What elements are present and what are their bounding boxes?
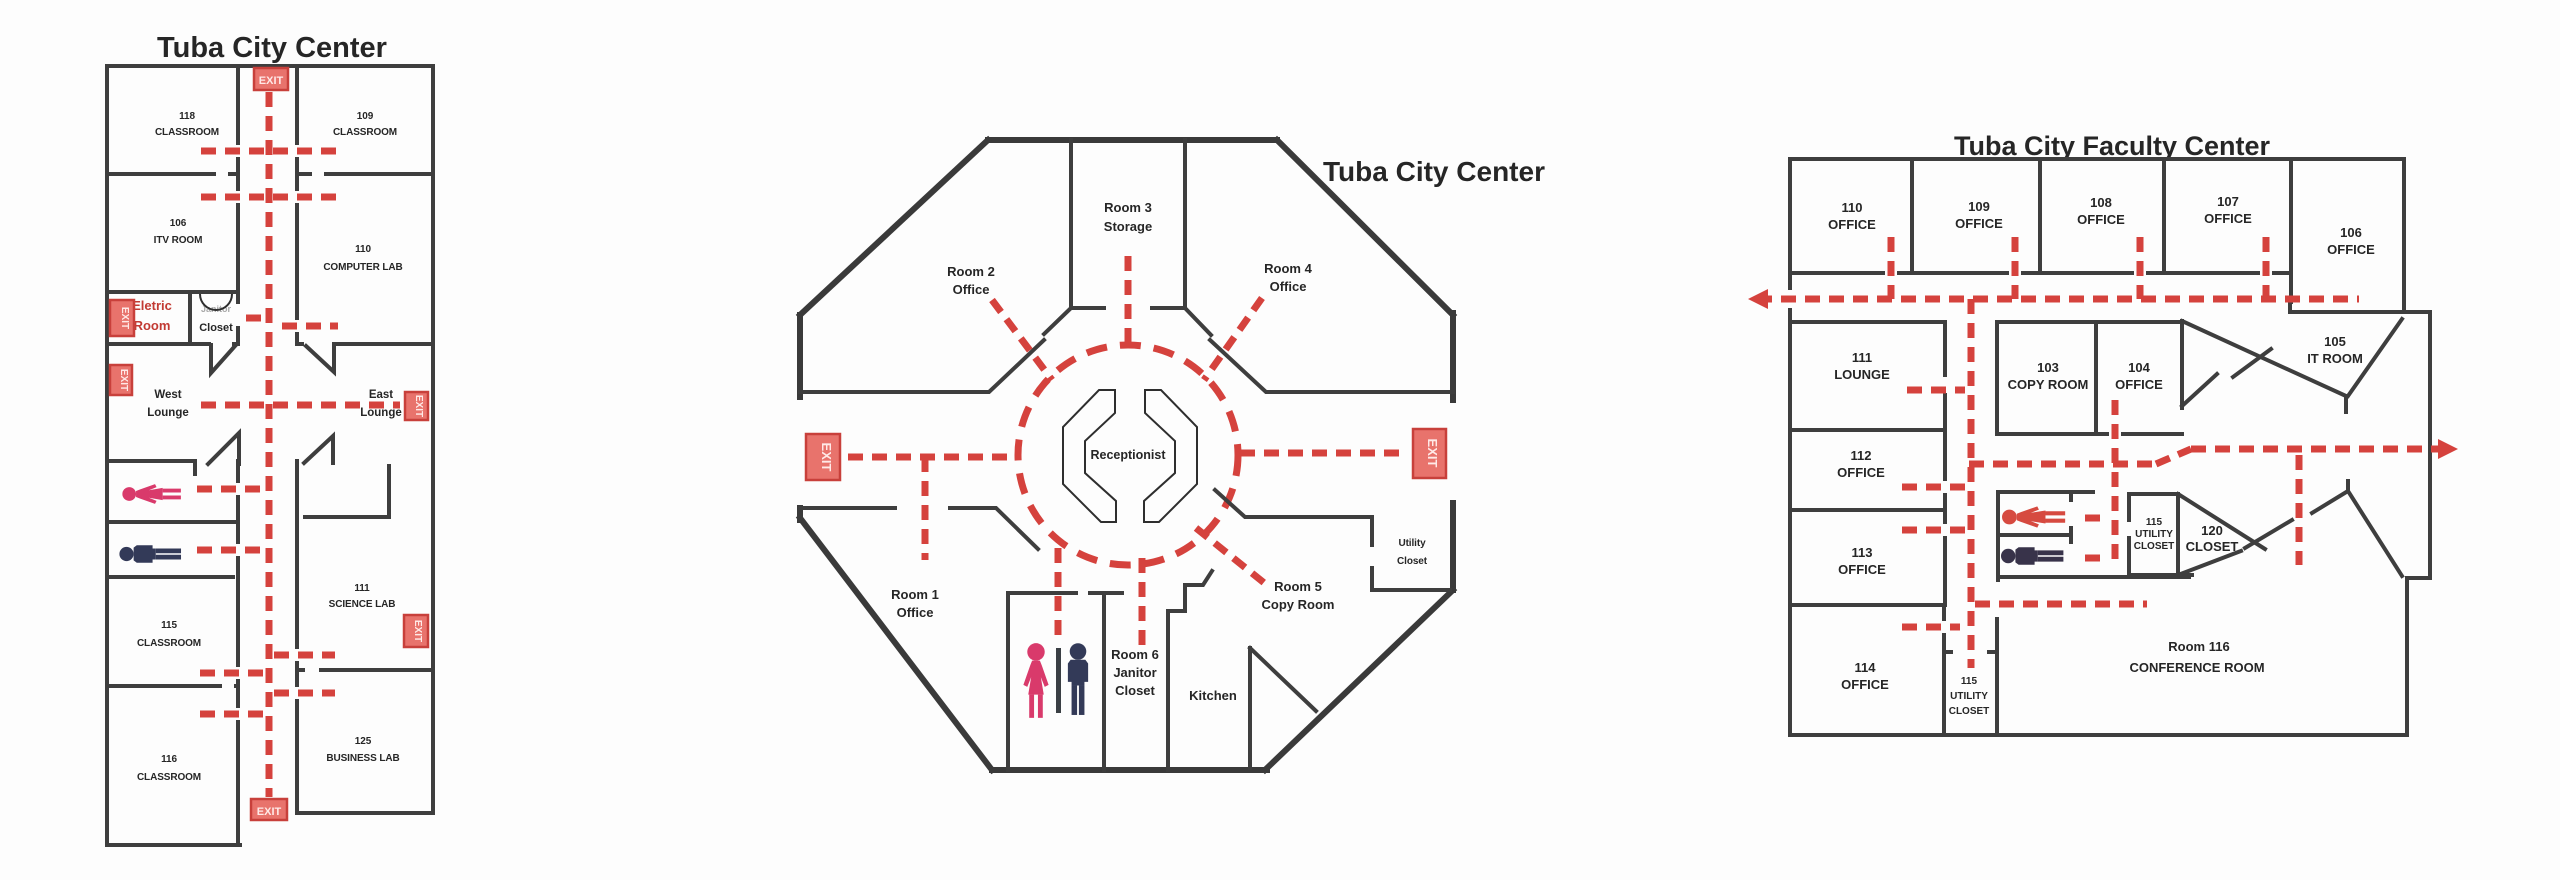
svg-text:OFFICE: OFFICE [1955,216,2003,231]
svg-text:116: 116 [161,754,177,765]
svg-text:CLOSET: CLOSET [2186,539,2239,554]
svg-text:OFFICE: OFFICE [1837,465,1885,480]
svg-text:115: 115 [1961,676,1978,687]
svg-text:CLASSROOM: CLASSROOM [333,127,397,138]
svg-text:Closet: Closet [1397,556,1428,567]
svg-text:Closet: Closet [1115,683,1155,698]
svg-text:Kitchen: Kitchen [1189,688,1237,703]
svg-text:EXIT: EXIT [413,395,424,417]
svg-text:112: 112 [1851,448,1872,463]
svg-text:EXIT: EXIT [259,75,284,87]
svg-text:Room 3: Room 3 [1104,200,1152,215]
svg-text:OFFICE: OFFICE [1838,562,1886,577]
svg-text:109: 109 [1968,199,1990,214]
svg-text:BUSINESS LAB: BUSINESS LAB [326,753,399,764]
svg-text:Utility: Utility [1398,538,1426,549]
svg-text:113: 113 [1852,545,1873,560]
svg-text:COMPUTER LAB: COMPUTER LAB [323,262,402,273]
svg-text:111: 111 [354,583,370,594]
svg-text:104: 104 [2128,360,2150,375]
svg-text:Room 1: Room 1 [891,587,939,602]
svg-text:OFFICE: OFFICE [2115,377,2163,392]
svg-text:125: 125 [355,736,372,747]
svg-text:EXIT: EXIT [118,369,129,391]
svg-text:CLASSROOM: CLASSROOM [137,772,201,783]
svg-text:West: West [154,389,181,401]
svg-text:115: 115 [2146,517,2163,528]
svg-text:118: 118 [179,111,195,122]
svg-text:Room 4: Room 4 [1264,261,1312,276]
svg-text:LOUNGE: LOUNGE [1834,367,1890,382]
svg-text:114: 114 [1855,660,1877,675]
svg-text:EXIT: EXIT [119,307,130,329]
svg-text:CONFERENCE ROOM: CONFERENCE ROOM [2129,660,2264,675]
svg-text:Office: Office [953,282,990,297]
svg-text:Copy Room: Copy Room [1262,597,1335,612]
svg-text:Storage: Storage [1104,219,1152,234]
svg-text:UTILITY: UTILITY [2135,529,2173,540]
svg-text:OFFICE: OFFICE [2327,242,2375,257]
svg-text:Tuba City Center: Tuba City Center [157,32,387,64]
svg-text:Room 116: Room 116 [2168,639,2229,654]
svg-text:CLOSET: CLOSET [1949,706,1990,717]
svg-text:IT ROOM: IT ROOM [2307,351,2363,366]
svg-text:Room: Room [134,318,171,333]
svg-text:Closet: Closet [199,322,233,334]
svg-text:Receptionist: Receptionist [1090,448,1166,462]
svg-text:OFFICE: OFFICE [1841,677,1889,692]
svg-text:108: 108 [2090,195,2112,210]
svg-text:Lounge: Lounge [147,407,189,419]
svg-text:OFFICE: OFFICE [2077,212,2125,227]
svg-text:EXIT: EXIT [257,806,282,818]
svg-text:UTILITY: UTILITY [1950,691,1988,702]
svg-text:Room 6: Room 6 [1111,647,1159,662]
svg-text:103: 103 [2037,360,2059,375]
svg-text:110: 110 [355,244,371,255]
svg-text:SCIENCE LAB: SCIENCE LAB [329,599,396,610]
svg-text:109: 109 [357,111,374,122]
svg-text:OFFICE: OFFICE [1828,217,1876,232]
svg-text:110: 110 [1842,200,1863,215]
svg-text:CLASSROOM: CLASSROOM [137,638,201,649]
svg-text:EXIT: EXIT [1425,439,1440,468]
svg-text:COPY ROOM: COPY ROOM [2008,377,2089,392]
svg-text:EXIT: EXIT [819,443,834,472]
svg-text:111: 111 [1852,350,1872,365]
svg-text:107: 107 [2217,194,2239,209]
svg-text:120: 120 [2201,523,2223,538]
svg-text:Room 5: Room 5 [1274,579,1322,594]
svg-text:Tuba City Center: Tuba City Center [1323,156,1545,187]
svg-text:East: East [369,389,393,401]
svg-text:106: 106 [2340,225,2362,240]
svg-text:115: 115 [161,620,177,631]
svg-text:CLASSROOM: CLASSROOM [155,127,219,138]
svg-text:105: 105 [2324,334,2346,349]
svg-text:Lounge: Lounge [360,407,402,419]
svg-text:Eletric: Eletric [132,298,172,313]
svg-text:Office: Office [897,605,934,620]
svg-text:Janitor: Janitor [1113,665,1156,680]
svg-text:Tuba City Faculty Center: Tuba City Faculty Center [1954,131,2271,161]
svg-text:CLOSET: CLOSET [2134,541,2175,552]
svg-text:Office: Office [1270,279,1307,294]
svg-text:OFFICE: OFFICE [2204,211,2252,226]
svg-text:Room 2: Room 2 [947,264,995,279]
svg-text:106: 106 [170,218,187,229]
svg-text:ITV ROOM: ITV ROOM [154,235,203,246]
svg-text:EXIT: EXIT [412,620,423,642]
